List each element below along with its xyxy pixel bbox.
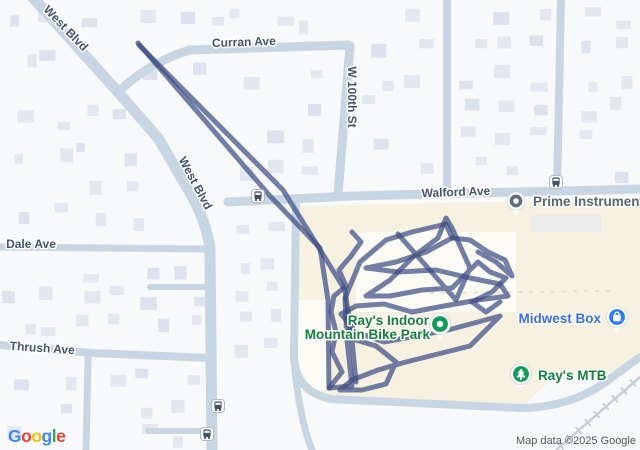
building xyxy=(125,153,137,166)
building xyxy=(261,258,275,269)
transit-stop-icon[interactable] xyxy=(201,428,214,441)
building xyxy=(140,297,157,310)
building xyxy=(10,15,19,26)
building xyxy=(85,291,101,304)
building xyxy=(465,99,480,111)
building xyxy=(475,39,487,48)
building xyxy=(175,266,187,279)
building xyxy=(269,222,286,232)
building xyxy=(244,77,260,90)
building xyxy=(493,12,509,25)
building xyxy=(311,70,323,78)
building xyxy=(193,63,206,75)
building xyxy=(302,167,318,175)
building xyxy=(405,9,420,22)
building xyxy=(83,274,99,283)
commercial-building xyxy=(531,215,601,232)
building xyxy=(141,408,152,419)
google-logo-letter: e xyxy=(56,426,65,446)
building xyxy=(40,50,56,61)
building xyxy=(194,297,205,307)
building xyxy=(373,139,388,150)
building xyxy=(134,218,145,231)
building xyxy=(236,291,249,302)
building xyxy=(28,54,37,67)
building xyxy=(267,282,278,291)
transit-stop-icon[interactable] xyxy=(252,190,265,203)
building xyxy=(173,436,183,447)
building xyxy=(140,10,156,23)
building xyxy=(110,286,124,295)
building xyxy=(499,100,515,112)
building xyxy=(235,345,248,358)
building xyxy=(76,315,89,327)
building xyxy=(585,7,601,17)
building xyxy=(14,380,29,391)
building xyxy=(127,181,139,191)
building xyxy=(371,44,386,58)
building xyxy=(82,18,97,27)
building xyxy=(240,312,252,322)
road-south-side-street xyxy=(86,358,88,450)
building xyxy=(615,172,629,183)
building xyxy=(188,375,200,385)
building xyxy=(362,95,376,104)
poi-label-midwest-box[interactable]: Midwest Box xyxy=(518,311,601,326)
building xyxy=(308,104,321,116)
building xyxy=(212,17,224,26)
building xyxy=(136,369,149,379)
poi-label-rays-indoor[interactable]: Ray's Indoor xyxy=(348,313,430,328)
building xyxy=(271,309,281,322)
building xyxy=(60,148,73,162)
building xyxy=(230,9,240,19)
google-logo-letter: o xyxy=(31,426,41,446)
building xyxy=(588,82,597,92)
building xyxy=(530,127,546,135)
building xyxy=(88,105,99,117)
building xyxy=(19,212,30,224)
building xyxy=(581,41,590,53)
building xyxy=(530,36,544,46)
building xyxy=(616,21,631,30)
street-label-curran-ave: Curran Ave xyxy=(212,34,277,50)
building xyxy=(531,83,548,92)
map-attribution: Map data ©2025 Google xyxy=(516,435,636,447)
building xyxy=(108,314,120,325)
building xyxy=(507,166,518,175)
building xyxy=(39,286,52,300)
building xyxy=(461,126,476,137)
building xyxy=(299,21,308,35)
building xyxy=(610,97,621,110)
building xyxy=(581,111,597,122)
building xyxy=(96,213,107,227)
map-canvas[interactable]: West BlvdCurran AveWest BlvdW 100th StWa… xyxy=(0,0,640,450)
building xyxy=(459,81,472,90)
building xyxy=(267,130,284,143)
poi-label-prime-instrument[interactable]: Prime Instrument xyxy=(533,194,640,209)
transit-stop-icon[interactable] xyxy=(212,400,225,413)
poi-label-rays-mtb[interactable]: Ray's MTB xyxy=(538,368,607,383)
building xyxy=(61,404,72,413)
road-north-street-b xyxy=(557,0,561,191)
building xyxy=(278,17,295,26)
transit-stop-icon[interactable] xyxy=(550,176,563,189)
street-label-dale-ave: Dale Ave xyxy=(6,237,56,251)
building xyxy=(241,263,250,274)
building xyxy=(57,122,70,130)
building xyxy=(90,181,102,195)
building xyxy=(621,76,632,89)
building xyxy=(171,400,184,413)
building xyxy=(192,315,202,324)
building xyxy=(158,319,169,333)
building xyxy=(237,225,250,234)
building xyxy=(264,338,278,348)
building xyxy=(534,105,548,115)
building xyxy=(616,37,628,48)
building xyxy=(404,75,420,88)
google-logo-letter: G xyxy=(8,426,21,446)
building xyxy=(181,12,195,24)
building xyxy=(148,268,160,280)
building xyxy=(76,143,85,152)
building xyxy=(580,130,593,139)
building xyxy=(15,154,23,164)
building xyxy=(41,327,56,336)
building xyxy=(2,291,15,303)
building xyxy=(17,110,34,122)
building xyxy=(494,65,510,79)
building xyxy=(26,324,36,334)
building xyxy=(419,39,434,48)
google-logo-letter: g xyxy=(42,426,52,446)
google-logo[interactable]: Google xyxy=(8,426,65,447)
building xyxy=(495,133,510,146)
building xyxy=(540,9,551,20)
building xyxy=(476,157,487,165)
building xyxy=(54,203,68,213)
building xyxy=(421,163,434,174)
building xyxy=(497,36,511,48)
map-graphics: West BlvdCurran AveWest BlvdW 100th StWa… xyxy=(0,0,640,450)
building xyxy=(111,375,127,387)
google-logo-letter: o xyxy=(21,426,31,446)
poi-label2-rays-indoor[interactable]: Mountain Bike Park xyxy=(305,327,431,342)
street-label-walford-ave: Walford Ave xyxy=(421,184,490,200)
building xyxy=(113,109,126,119)
building xyxy=(66,377,76,391)
building xyxy=(302,139,314,153)
building xyxy=(382,81,394,91)
street-label-w-100th-st: W 100th St xyxy=(345,66,359,127)
building xyxy=(268,160,284,174)
